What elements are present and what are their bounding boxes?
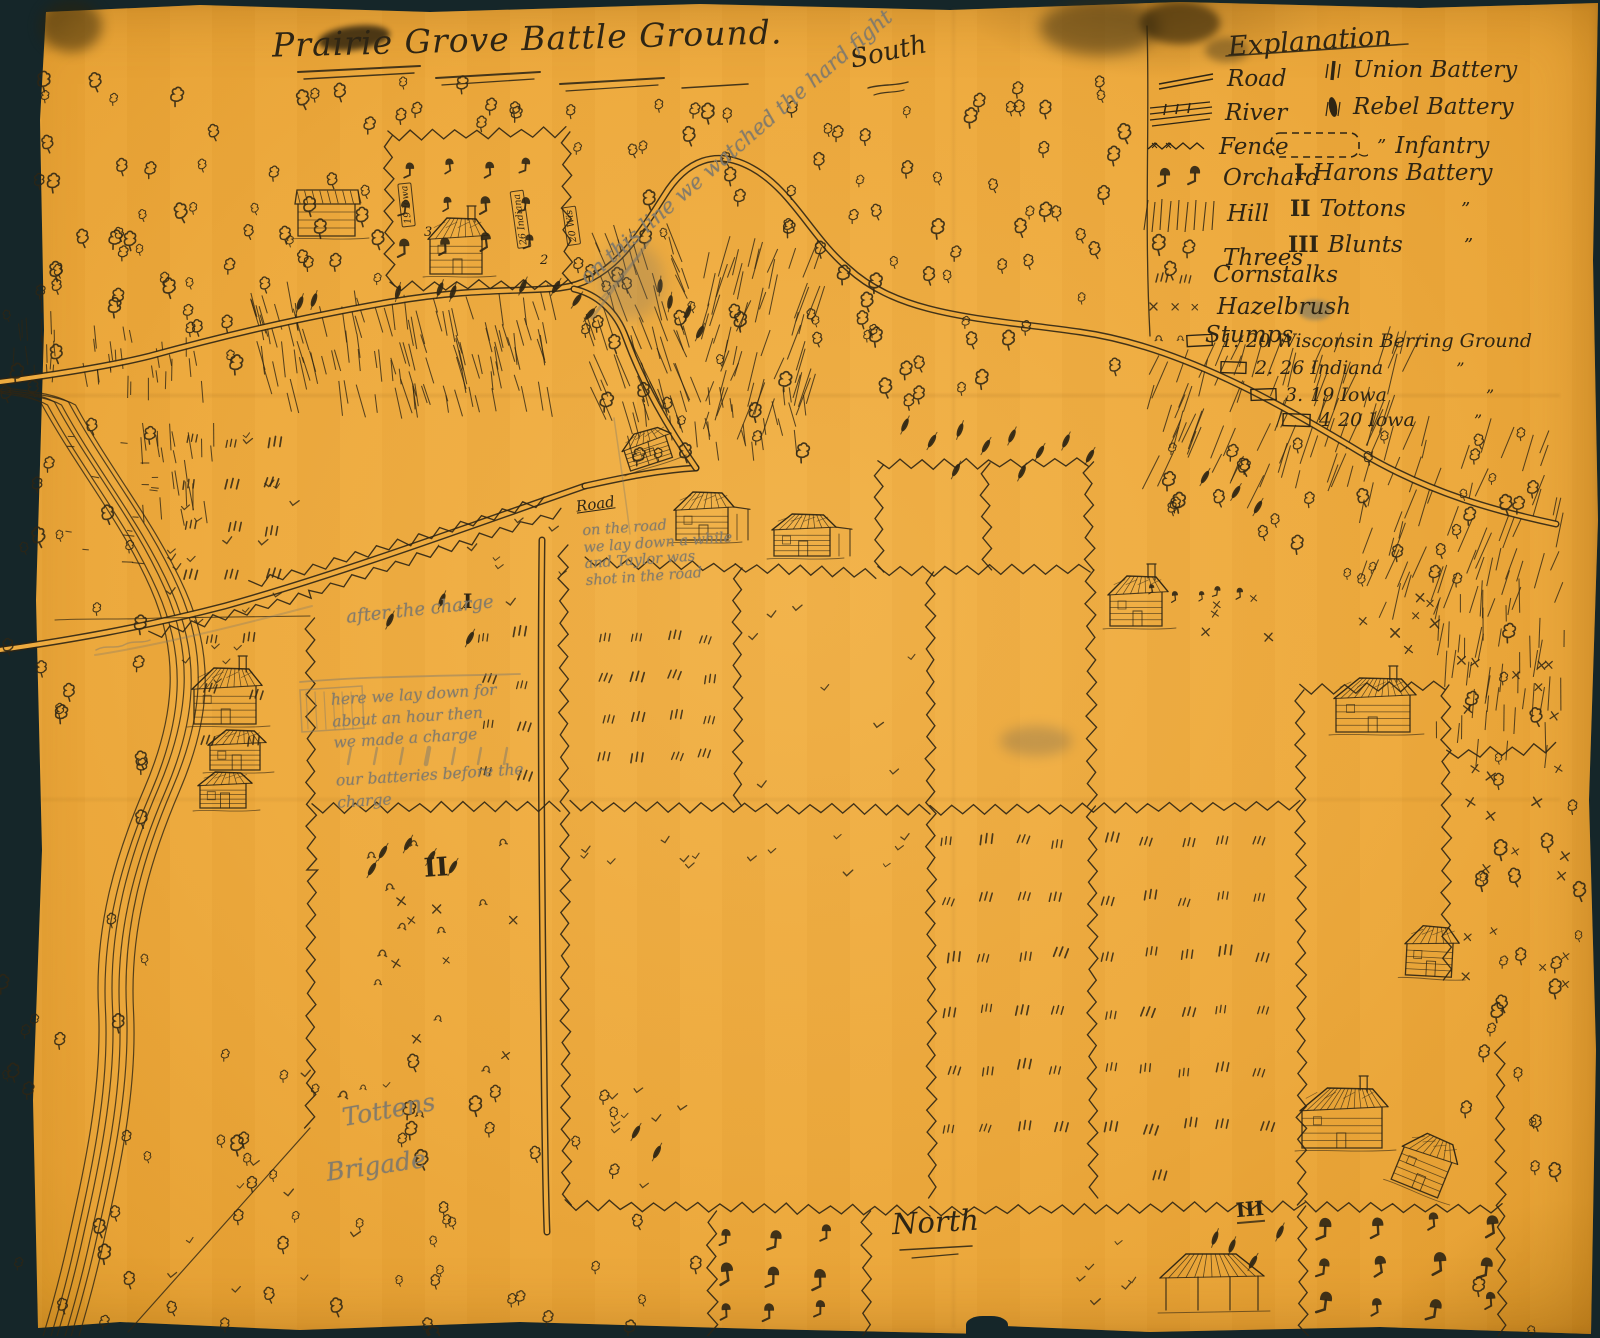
fence-symbol-icon — [1146, 137, 1210, 157]
legend-row-harons: I Harons Battery — [1294, 160, 1493, 186]
burial-box-icon — [1282, 413, 1312, 428]
legend-numeral: III — [1288, 232, 1319, 258]
legend-row-infantry: ” Infantry — [1268, 128, 1489, 164]
burial-label: 26 Indiana — [1280, 357, 1383, 379]
hill-symbol-icon — [1140, 194, 1218, 234]
burial-box-19-iowa: 19 Iowa — [398, 181, 426, 228]
rebel-battery-symbol-icon — [1322, 92, 1344, 122]
river-symbol-icon — [1148, 98, 1216, 128]
burial-num: 2. — [1255, 357, 1273, 379]
map-photo: Prairie Grove Battle Ground. South North… — [0, 0, 1600, 1336]
legend-label: Harons Battery — [1313, 160, 1492, 186]
legend-ditto: ” — [1464, 235, 1473, 256]
legend-label: Blunts — [1328, 232, 1403, 258]
legend-label: Rebel Battery — [1353, 94, 1514, 120]
burial-num: 4 — [1319, 409, 1331, 431]
legend-row-burial-3: 3. 19 Iowa ” — [1250, 384, 1494, 406]
burial-box-19-iowa-number: 3 — [424, 226, 432, 241]
hazelbrush-symbol-icon — [1146, 298, 1208, 316]
union-battery-symbol-icon — [1322, 56, 1344, 84]
legend-row-hill: Hill — [1140, 194, 1269, 234]
legend-row-union-battery: Union Battery — [1322, 56, 1517, 84]
burial-label: 20 Iowa — [1338, 409, 1415, 431]
numeral-II-marker: II — [423, 853, 449, 885]
legend-label: River — [1225, 100, 1287, 126]
cornstalks-symbol-icon — [1152, 264, 1204, 286]
legend-ditto: ” — [1474, 411, 1482, 430]
road-symbol-icon — [1156, 68, 1218, 90]
legend-row-blunts: III Blunts ” — [1288, 232, 1473, 258]
legend-row-road: Road — [1156, 66, 1287, 92]
compass-north-label: North — [891, 1204, 980, 1242]
burial-box-icon — [1186, 334, 1214, 348]
legend-numeral: I — [1294, 160, 1304, 186]
legend-ditto: ” — [1461, 199, 1470, 220]
legend-ditto: ” — [1456, 359, 1464, 378]
legend-row-hazelbrush: Hazelbrush — [1146, 294, 1351, 320]
legend-label: Hazelbrush — [1217, 294, 1351, 320]
legend-row-burial-4: 4 20 Iowa ” — [1282, 409, 1482, 431]
legend-row-rebel-battery: Rebel Battery — [1322, 92, 1514, 122]
legend-numeral: II — [1290, 196, 1311, 222]
burial-num: 1. — [1221, 330, 1239, 352]
legend-row-burial-2: 2. 26 Indiana ” — [1220, 357, 1464, 379]
burial-num: 3. — [1285, 384, 1303, 406]
pencil-note-charge: here we lay down for about an hour then … — [330, 678, 525, 814]
infantry-symbol-icon — [1268, 128, 1368, 164]
legend-label: Tottons — [1320, 196, 1406, 222]
burial-box-icon — [1220, 361, 1248, 375]
legend-row-burial-1: 1. 20 Wisconsin Berring Ground — [1186, 330, 1532, 352]
legend-row-cornstalks: Cornstalks — [1152, 262, 1338, 288]
legend-label: Union Battery — [1353, 57, 1517, 83]
burial-box-icon — [1250, 388, 1278, 402]
numeral-III-marker: III — [1235, 1197, 1265, 1224]
orchard-symbol-icon — [1152, 160, 1214, 196]
pencil-note-road: on the road we lay down a while and Tayl… — [582, 513, 735, 590]
legend-label: Hill — [1227, 201, 1269, 227]
legend-row-river: River — [1148, 98, 1287, 128]
legend-label: Cornstalks — [1213, 262, 1338, 288]
legend-label: Infantry — [1395, 133, 1489, 159]
burial-box-26-indiana-number: 2 — [540, 254, 548, 269]
legend-ditto: ” — [1377, 136, 1386, 157]
burial-label: 20 Wisconsin Berring Ground — [1246, 330, 1532, 352]
burial-label: 19 Iowa — [1310, 384, 1387, 406]
legend-label: Road — [1227, 66, 1287, 92]
legend-row-tottons: II Tottons ” — [1290, 196, 1470, 222]
legend-ditto: ” — [1486, 386, 1494, 405]
